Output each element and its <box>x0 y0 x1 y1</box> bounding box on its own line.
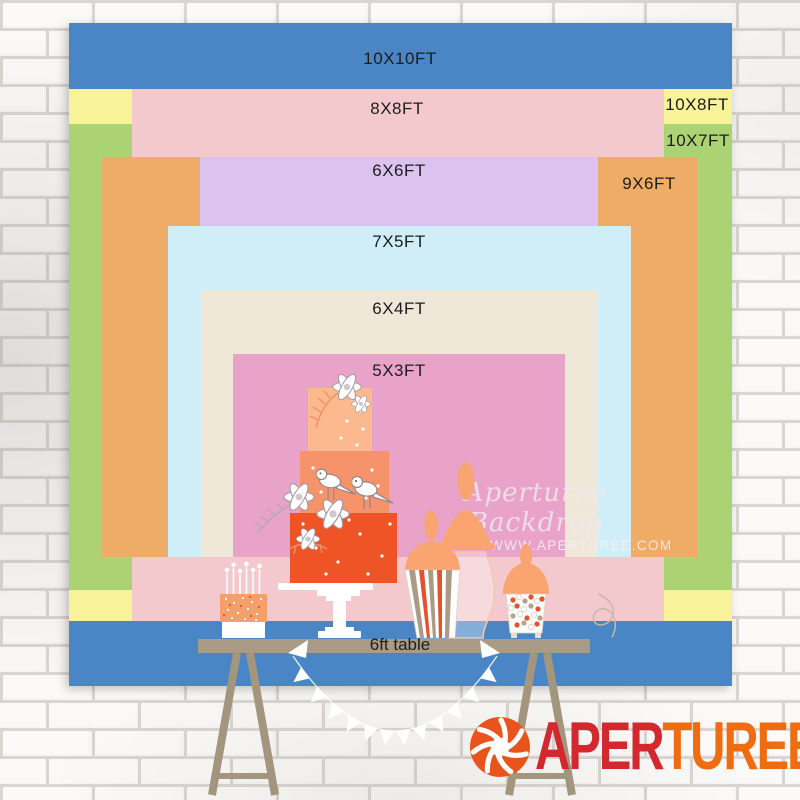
candle-cake <box>220 562 267 638</box>
cake-stand <box>278 583 373 638</box>
garland-string <box>293 656 497 731</box>
wire-swirl-decoration <box>593 594 615 637</box>
pennant-garland <box>293 667 496 745</box>
pennant-triangle <box>396 730 410 746</box>
dessert-table-illustration <box>0 0 800 800</box>
pennant-triangle <box>413 724 426 740</box>
logo-wordmark: APERTUREE <box>535 720 800 772</box>
aperture-icon <box>469 714 531 778</box>
aperturee-logo: APERTUREE <box>469 714 800 778</box>
pennant-triangle <box>464 687 480 702</box>
small-jar-lid <box>503 563 549 594</box>
pennant-triangle <box>311 687 327 702</box>
pennant-triangle <box>364 724 377 740</box>
table-size-label: 6ft table <box>330 635 470 654</box>
candle-cake-base <box>222 622 265 638</box>
small-candy-jar <box>503 544 549 638</box>
tall-jar-lid <box>440 510 492 547</box>
popcorn-jar-finial <box>425 510 438 540</box>
tall-jar-finial <box>458 462 475 500</box>
cake-tier-middle <box>300 451 389 513</box>
logo-text-part1: APER <box>535 708 662 784</box>
logo-text-part2: TUREE <box>662 708 800 784</box>
scene: 10X10FT10X8FT10X7FT8X8FT9X6FT6X6FT7X5FT6… <box>0 0 800 800</box>
table-legs-left <box>212 653 275 795</box>
pennant-triangle <box>380 730 394 746</box>
